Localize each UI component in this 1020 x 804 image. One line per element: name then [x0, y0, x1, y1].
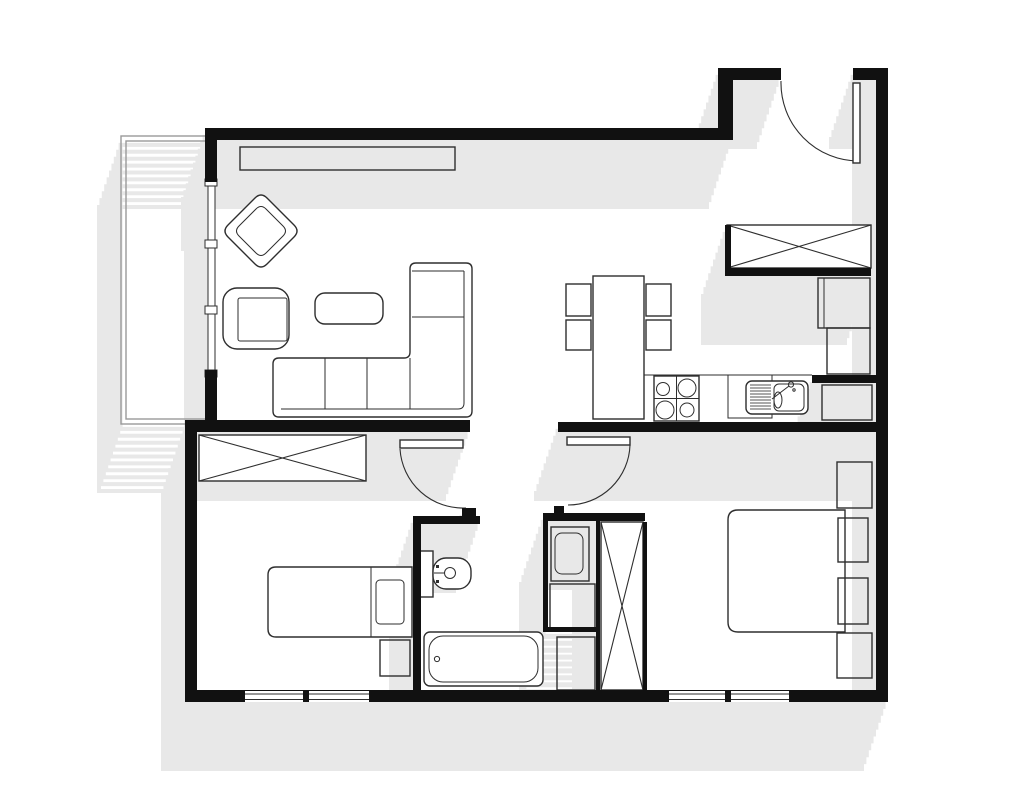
armchair — [223, 288, 289, 349]
door-leaf — [567, 437, 630, 445]
entry-wardrobe — [727, 225, 871, 268]
bedroom2-window — [664, 691, 794, 702]
single-bed — [268, 567, 412, 637]
glazing-mullion — [205, 306, 217, 314]
bedroom1-window — [240, 691, 374, 702]
coffee-table — [315, 293, 383, 324]
bedroom1-wardrobe — [199, 435, 366, 481]
bedroom2-wardrobe — [601, 522, 643, 690]
window-mullion — [725, 691, 731, 702]
window-mullion — [303, 691, 309, 702]
floor-plan-canvas — [0, 0, 1020, 804]
floor-plan-svg — [0, 0, 1020, 804]
dining-chair — [566, 320, 591, 350]
kitchen-hob — [654, 376, 699, 421]
toilet-tank — [419, 551, 433, 597]
door-leaf — [853, 83, 860, 163]
dining-chair — [646, 320, 671, 350]
glazing-mullion — [205, 240, 217, 248]
dining-chair — [646, 284, 671, 316]
window-glazing — [208, 182, 215, 376]
dining-chair — [566, 284, 591, 316]
bathtub — [424, 632, 543, 686]
door-leaf — [400, 440, 463, 448]
dining-table — [593, 276, 644, 419]
